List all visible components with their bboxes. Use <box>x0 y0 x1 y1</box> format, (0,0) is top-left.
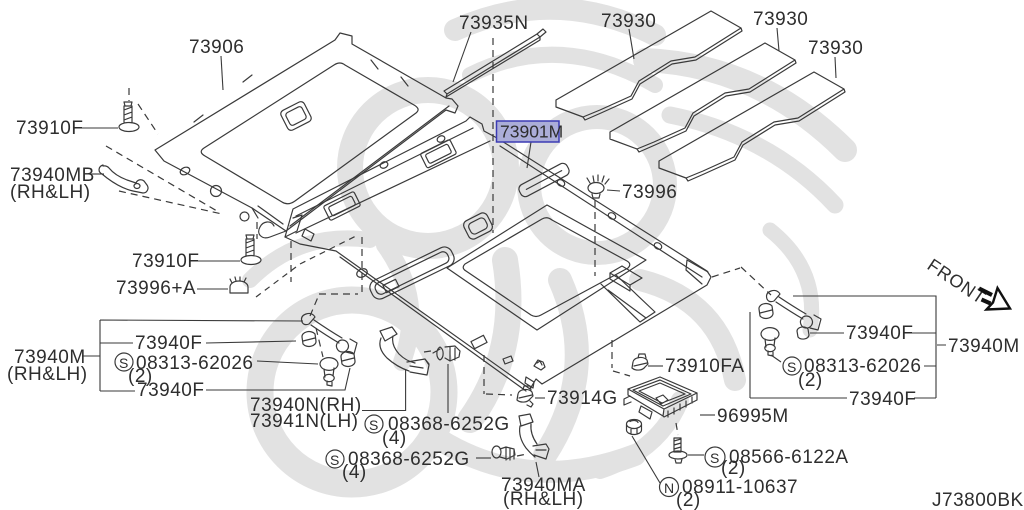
svg-text:73930: 73930 <box>808 38 863 59</box>
svg-text:(RH&LH): (RH&LH) <box>7 364 88 385</box>
svg-text:96995M: 96995M <box>717 406 789 427</box>
svg-text:73940F: 73940F <box>849 389 916 410</box>
svg-text:S: S <box>330 452 339 468</box>
svg-text:J73800BK: J73800BK <box>932 490 1024 510</box>
svg-text:08313-62026: 08313-62026 <box>136 353 254 374</box>
svg-text:08566-6122A: 08566-6122A <box>729 447 849 468</box>
svg-text:73914G: 73914G <box>547 388 618 409</box>
svg-text:(4): (4) <box>342 462 367 483</box>
svg-text:73910FA: 73910FA <box>665 356 745 377</box>
svg-text:S: S <box>369 417 378 433</box>
svg-text:(2): (2) <box>798 370 823 391</box>
svg-text:73910F: 73910F <box>132 251 199 272</box>
svg-text:73940F: 73940F <box>135 333 202 354</box>
svg-text:S: S <box>710 450 719 466</box>
svg-text:73935N: 73935N <box>459 13 529 34</box>
svg-text:73996+A: 73996+A <box>116 278 196 299</box>
svg-text:73901M: 73901M <box>500 122 563 142</box>
svg-text:FRONT: FRONT <box>924 255 990 308</box>
svg-text:(RH&LH): (RH&LH) <box>503 489 584 510</box>
svg-text:73941N(LH): 73941N(LH) <box>250 411 359 432</box>
svg-text:73930: 73930 <box>753 9 808 30</box>
svg-text:S: S <box>119 355 128 371</box>
svg-text:73996: 73996 <box>622 182 677 203</box>
svg-text:S: S <box>787 359 796 375</box>
svg-text:73940F: 73940F <box>846 323 913 344</box>
svg-text:(4): (4) <box>382 428 407 449</box>
svg-text:73906: 73906 <box>189 37 244 58</box>
svg-text:(RH&LH): (RH&LH) <box>10 182 91 203</box>
svg-text:73930: 73930 <box>601 11 656 32</box>
svg-text:73940F: 73940F <box>137 380 204 401</box>
svg-text:73940M: 73940M <box>948 336 1020 357</box>
svg-text:N: N <box>664 480 674 496</box>
svg-text:(2): (2) <box>676 490 701 510</box>
svg-text:73910F: 73910F <box>16 118 83 139</box>
svg-text:(2): (2) <box>721 458 746 479</box>
